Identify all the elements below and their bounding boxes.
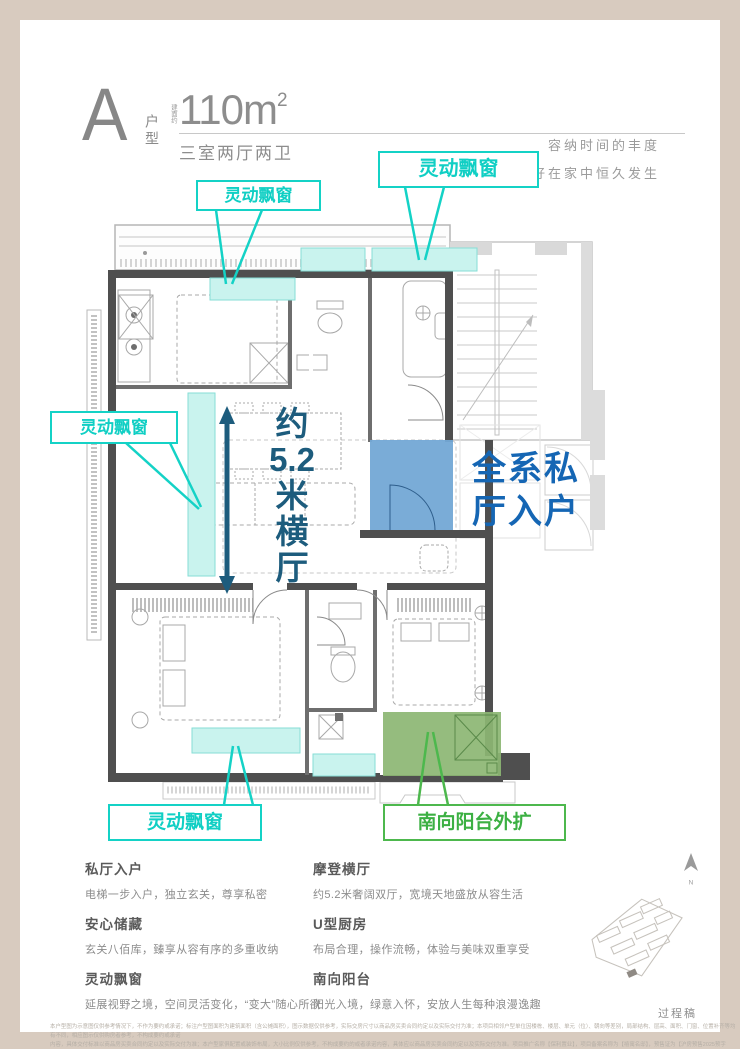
unit-type-label: 户型 [142, 114, 162, 148]
draft-watermark: 过程稿 [658, 1005, 697, 1021]
area-prefix: 建面约 [170, 104, 179, 123]
feature-bay-window: 灵动飘窗 延展视野之境，空间灵活变化，“变大”随心所欲 [85, 968, 300, 998]
content-card: A 户型 建面约 110m2 三室两厅两卫 容纳时间的丰度 让美好在家中恒久发生 [20, 20, 720, 1032]
floorplan-poster: A 户型 建面约 110m2 三室两厅两卫 容纳时间的丰度 让美好在家中恒久发生 [0, 0, 740, 1049]
feature-column-left: 私厅入户 电梯一步入户，独立玄关，尊享私密 安心储藏 玄关八佰库，臻享从容有序的… [85, 858, 300, 1023]
callout-bay-window-top-right: 灵动飘窗 [378, 151, 539, 188]
compass-n-label: N [681, 879, 702, 886]
callout-bay-window-left: 灵动飘窗 [50, 411, 178, 444]
feature-private-entry: 私厅入户 电梯一步入户，独立玄关，尊享私密 [85, 858, 300, 888]
feature-storage: 安心储藏 玄关八佰库，臻享从容有序的多重收纳 [85, 913, 300, 943]
north-arrow-icon: N [678, 852, 704, 882]
rooms-text: 三室两厅两卫 [179, 139, 293, 164]
feature-column-right: 摩登横厅 约5.2米奢阔双厅，宽境天地盛放从容生活 U型厨房 布局合理，操作流畅… [313, 858, 543, 1023]
hall-width-label: 约 5.2 米 横 厅 [256, 406, 328, 586]
area-value: 110m2 [179, 86, 287, 134]
private-entry-label: 全系私 厅入户 [472, 448, 580, 534]
site-plan-icon [583, 893, 688, 981]
legal-disclaimer: 本户型图为示意图仅供参考情况下，不作为要约或承诺；标注户型图面积为建筑面积（含公… [50, 1022, 737, 1049]
unit-letter: A [82, 78, 127, 152]
area-superscript: 2 [277, 90, 287, 111]
callout-south-balcony: 南向阳台外扩 [383, 804, 566, 841]
feature-wide-hall: 摩登横厅 约5.2米奢阔双厅，宽境天地盛放从容生活 [313, 858, 543, 888]
callout-bay-window-bottom: 灵动飘窗 [108, 804, 262, 841]
callout-bay-window-top-left: 灵动飘窗 [196, 180, 321, 211]
feature-south-balcony: 南向阳台 阳光入境，绿意入怀，安放人生每种浪漫逸趣 [313, 968, 543, 998]
feature-u-kitchen: U型厨房 布局合理，操作流畅，体验与美味双重享受 [313, 913, 543, 943]
